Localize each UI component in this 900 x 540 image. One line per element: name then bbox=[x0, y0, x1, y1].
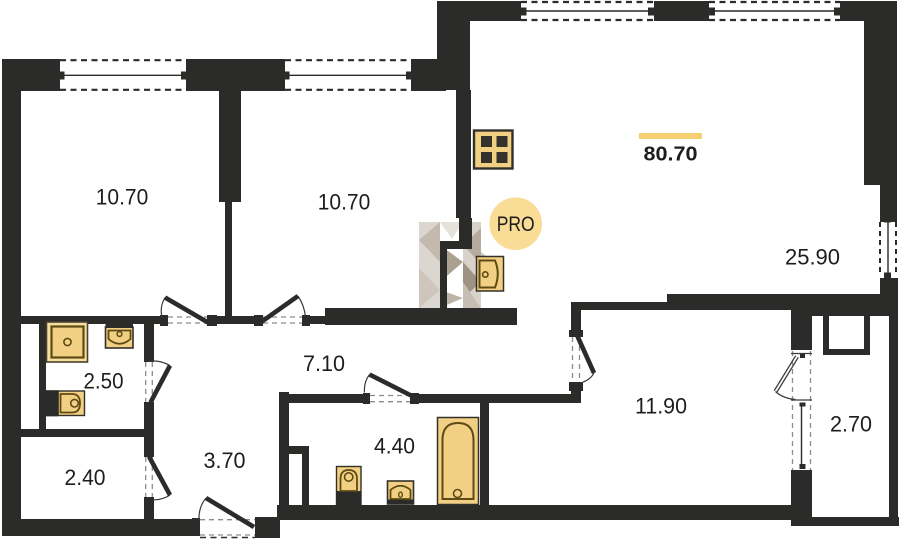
svg-text:80.70: 80.70 bbox=[644, 143, 698, 166]
svg-text:10.70: 10.70 bbox=[96, 185, 149, 210]
svg-text:7.10: 7.10 bbox=[303, 351, 345, 376]
svg-text:2.50: 2.50 bbox=[84, 369, 124, 394]
svg-text:2.40: 2.40 bbox=[65, 465, 106, 490]
svg-text:11.90: 11.90 bbox=[635, 394, 687, 419]
svg-text:4.40: 4.40 bbox=[374, 434, 415, 459]
svg-text:PRO: PRO bbox=[497, 213, 535, 236]
svg-text:10.70: 10.70 bbox=[318, 190, 371, 215]
svg-text:2.70: 2.70 bbox=[830, 412, 872, 437]
svg-text:3.70: 3.70 bbox=[204, 448, 246, 473]
svg-text:25.90: 25.90 bbox=[785, 245, 840, 270]
